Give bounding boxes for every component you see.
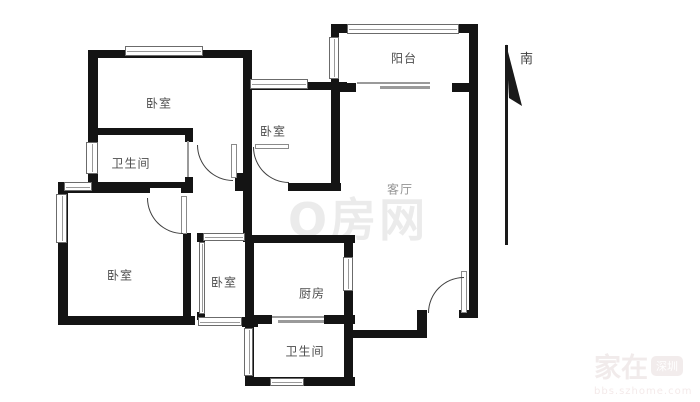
window	[64, 182, 92, 191]
room-label-kitchen: 厨房	[299, 285, 325, 302]
watermark-badge: 深圳	[651, 356, 683, 376]
wall	[417, 310, 427, 338]
wall	[245, 315, 272, 324]
watermark-brand: 家在	[594, 346, 648, 385]
sliding-door-line	[357, 82, 430, 84]
room-label-bedroom-bottom-left: 卧室	[107, 267, 133, 284]
door-swing-arc	[428, 277, 464, 313]
wall	[245, 235, 355, 243]
floor-plan: Q房网	[0, 0, 700, 402]
wall	[331, 83, 340, 190]
room-label-balcony: 阳台	[391, 50, 417, 67]
wall	[181, 188, 193, 193]
window	[347, 24, 459, 34]
wall	[352, 330, 418, 338]
window	[198, 317, 242, 326]
sliding-door-line	[272, 316, 324, 318]
sliding-door-line	[380, 86, 430, 89]
watermark-corner: 家在深圳 bbs.szhome.com	[594, 346, 698, 397]
window	[270, 378, 304, 386]
wall	[183, 233, 191, 324]
room-label-bathroom-bottom: 卫生间	[285, 343, 324, 360]
door-swing-arc	[197, 145, 233, 181]
room-label-bedroom-top-left: 卧室	[146, 95, 172, 112]
window	[56, 194, 67, 243]
wall	[88, 128, 192, 135]
door-swing-arc	[147, 198, 183, 234]
window	[250, 79, 308, 89]
pocket-door-leaf	[187, 141, 189, 177]
wall	[452, 83, 470, 92]
door-swing-arc	[253, 147, 289, 183]
wall	[469, 24, 478, 317]
watermark-url: bbs.szhome.com	[594, 386, 698, 397]
window	[203, 233, 245, 241]
wall	[288, 183, 341, 191]
sliding-door-line	[278, 320, 324, 323]
compass-south-label: 南	[520, 48, 533, 67]
window	[125, 46, 203, 56]
window	[244, 328, 253, 376]
window	[86, 142, 98, 174]
wall	[58, 316, 195, 325]
window	[199, 242, 205, 314]
room-label-bedroom-bottom-middle: 卧室	[211, 274, 237, 291]
room-label-bathroom-top: 卫生间	[111, 155, 150, 172]
window	[329, 37, 339, 79]
window	[343, 257, 353, 291]
room-label-bedroom-middle: 卧室	[260, 123, 286, 140]
wall	[185, 128, 193, 142]
wall	[324, 315, 355, 324]
room-label-living-room: 客厅	[387, 181, 413, 198]
